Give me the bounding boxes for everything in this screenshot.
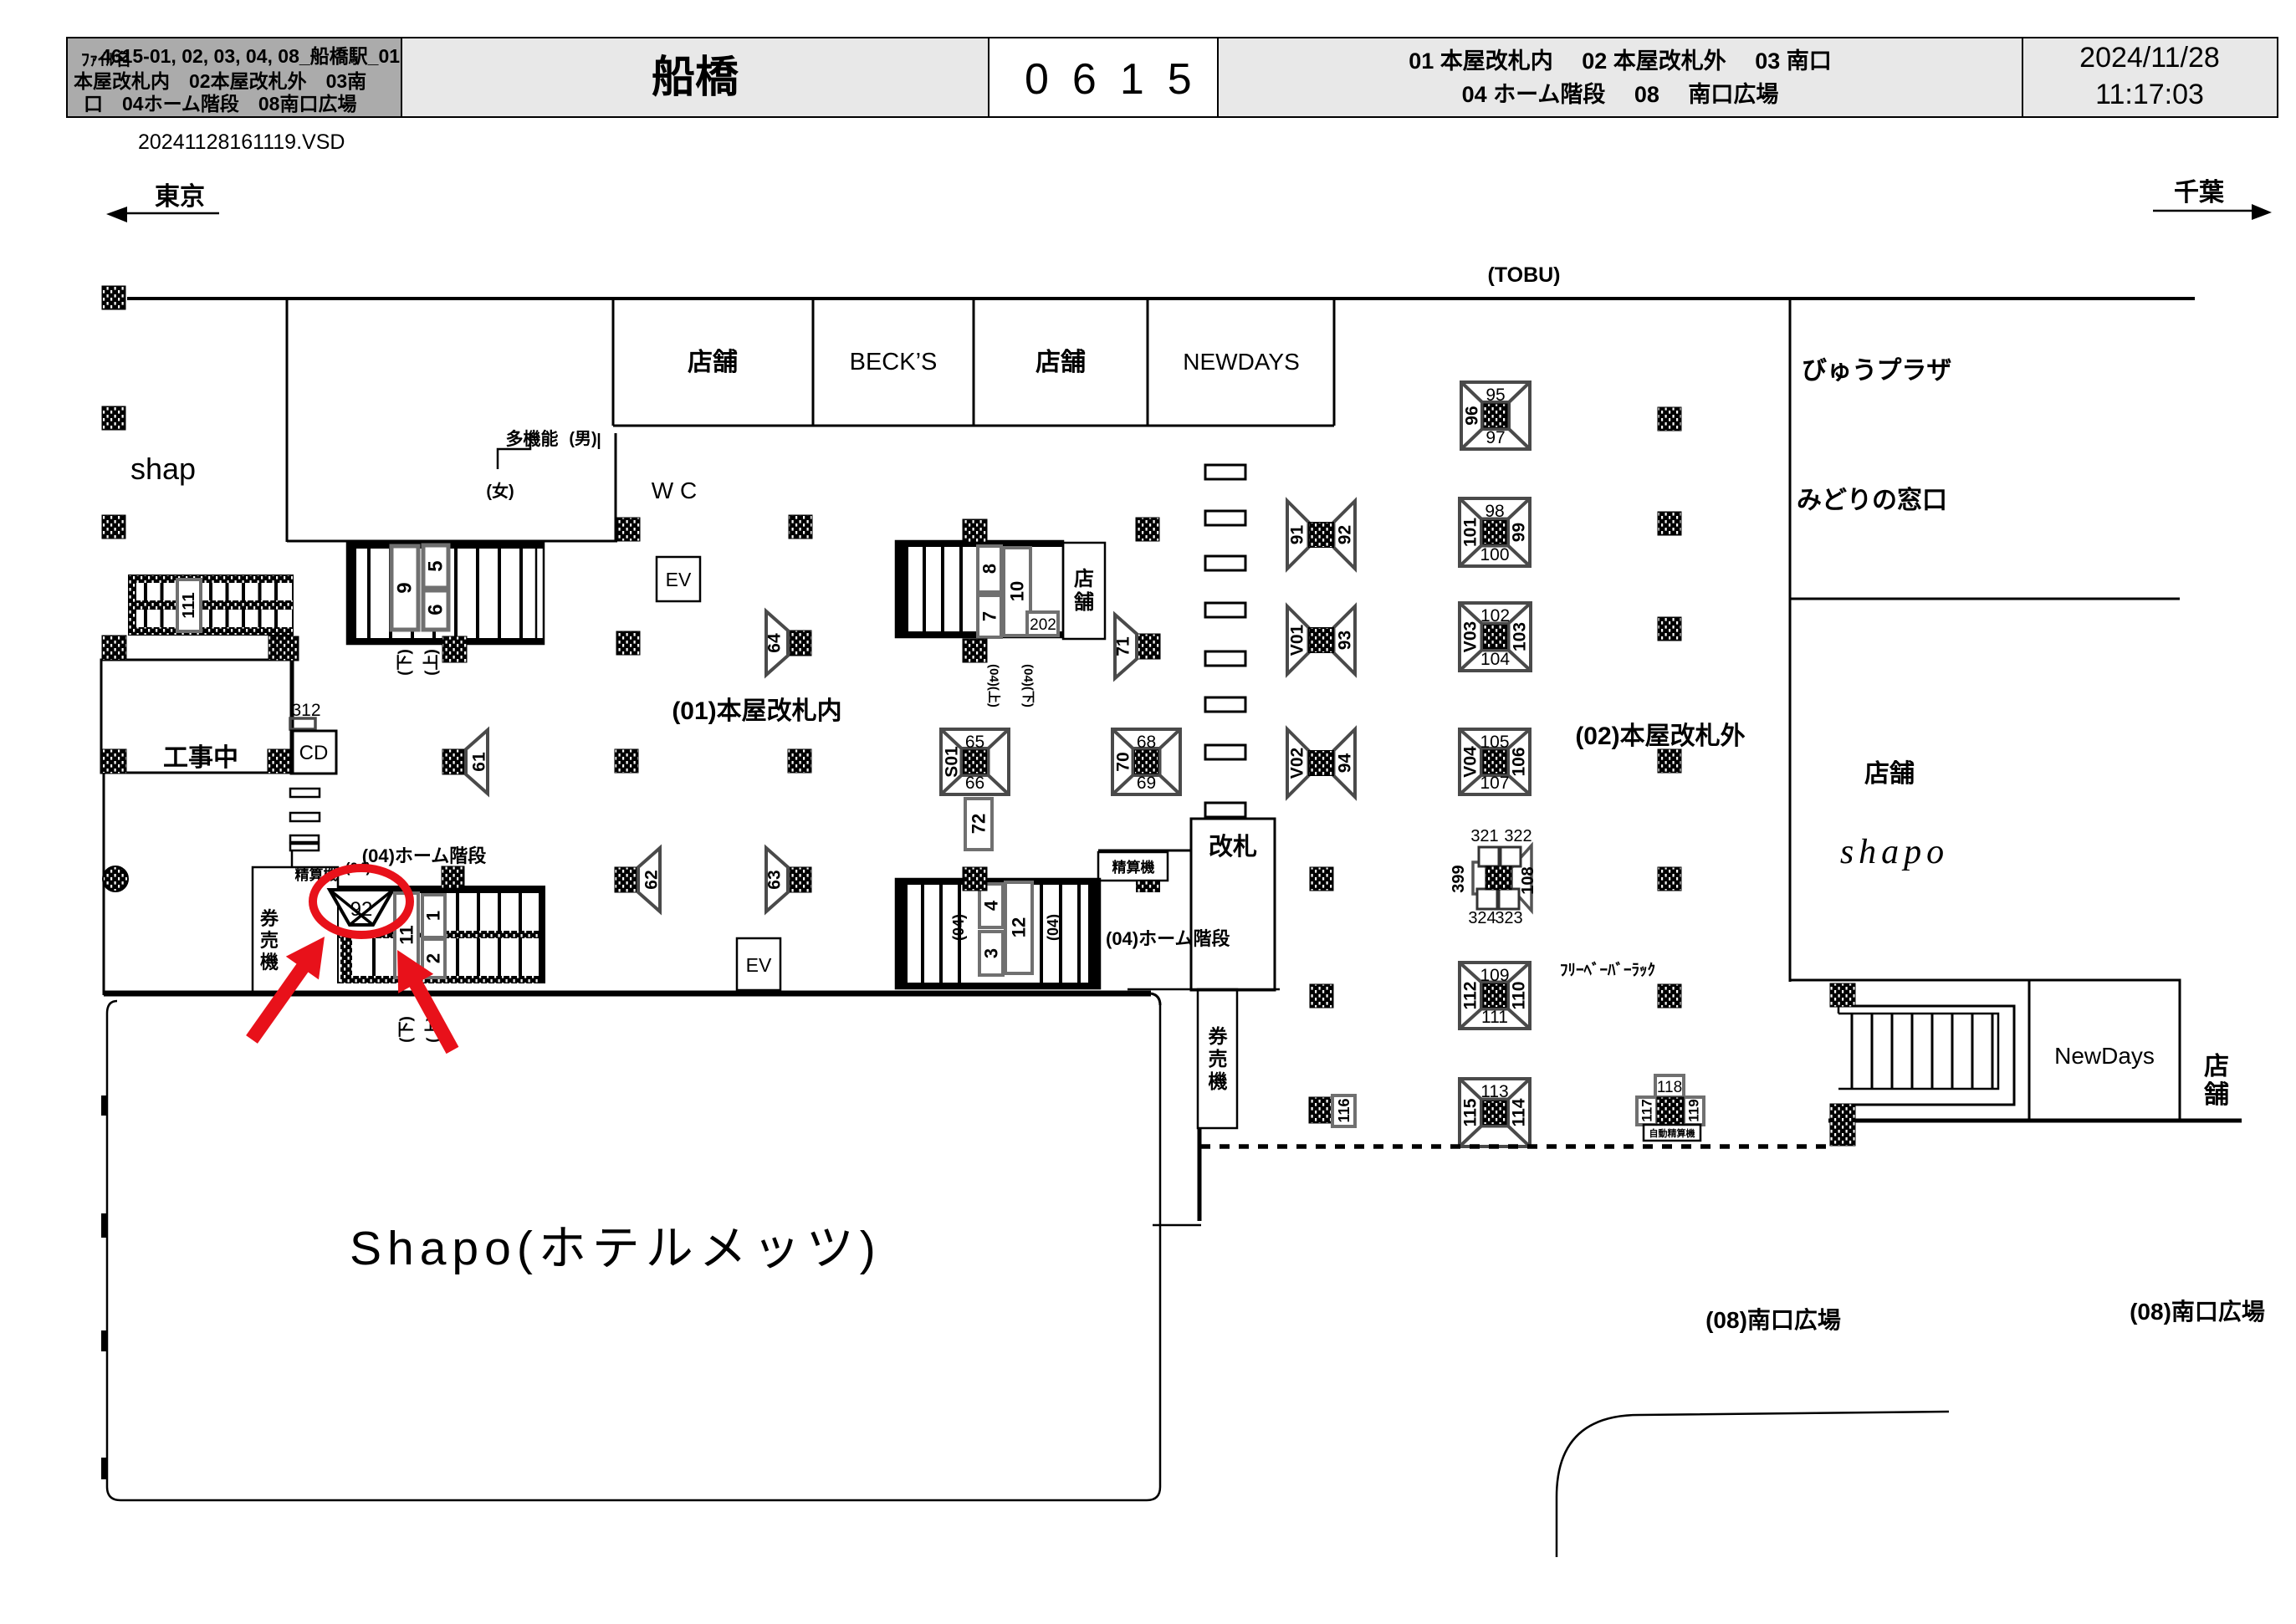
svg-text:68: 68 (1137, 733, 1156, 752)
svg-text:(04)ホーム階段: (04)ホーム階段 (1106, 928, 1230, 949)
svg-text:(下): (下) (398, 1016, 416, 1043)
svg-text:91: 91 (1288, 525, 1307, 545)
svg-text:(04): (04) (1045, 914, 1061, 941)
svg-text:101: 101 (1461, 518, 1480, 547)
svg-text:96: 96 (1463, 406, 1482, 425)
svg-text:323: 323 (1495, 909, 1522, 927)
svg-text:(上): (上) (422, 649, 441, 676)
svg-text:61: 61 (470, 752, 489, 772)
svg-text:63: 63 (765, 870, 785, 889)
svg-text:106: 106 (1510, 747, 1529, 776)
svg-text:112: 112 (1461, 982, 1480, 1010)
svg-text:NEWDAYS: NEWDAYS (1183, 349, 1300, 375)
svg-text:工事中: 工事中 (163, 744, 238, 772)
svg-text:70: 70 (1114, 752, 1133, 771)
svg-text:321: 321 (1470, 827, 1498, 845)
svg-text:V02: V02 (1288, 748, 1307, 779)
svg-text:(08)南口広場: (08)南口広場 (2130, 1299, 2265, 1325)
svg-text:04 ホーム階段 08 南口広場: 04 ホーム階段 08 南口広場 (1462, 81, 1779, 107)
svg-text:95: 95 (1485, 386, 1505, 405)
svg-text:自動精算機: 自動精算機 (1649, 1127, 1695, 1139)
svg-text:108: 108 (1519, 866, 1537, 894)
svg-text:92: 92 (1336, 525, 1355, 544)
svg-text:399: 399 (1450, 865, 1468, 892)
svg-text:(04)(下): (04)(下) (1021, 664, 1036, 707)
svg-text:ﾌﾘｰﾍﾞｰﾊﾞｰﾗｯｸ: ﾌﾘｰﾍﾞｰﾊﾞｰﾗｯｸ (1560, 960, 1655, 979)
svg-text:V01: V01 (1288, 625, 1307, 656)
svg-text:店舗: 店舗 (1864, 760, 1915, 788)
svg-text:CD: CD (299, 742, 329, 764)
svg-text:20241128161119.VSD: 20241128161119.VSD (138, 130, 345, 154)
svg-text:船橋: 船橋 (652, 54, 739, 102)
svg-text:116: 116 (1336, 1098, 1353, 1122)
svg-text:(02)本屋改札外: (02)本屋改札外 (1575, 723, 1745, 750)
svg-text:店舗: 店舗 (688, 349, 738, 376)
svg-text:NewDays: NewDays (2054, 1043, 2155, 1069)
svg-text:東京: 東京 (155, 182, 205, 211)
svg-text:12: 12 (1009, 917, 1030, 937)
svg-text:10: 10 (1007, 581, 1028, 601)
svg-text:5: 5 (425, 560, 447, 571)
svg-text:110: 110 (1510, 982, 1529, 1010)
svg-text:71: 71 (1114, 636, 1133, 656)
svg-text:202: 202 (1030, 616, 1056, 634)
svg-text:1: 1 (423, 911, 444, 921)
svg-text:EV: EV (746, 954, 772, 976)
svg-text:券: 券 (1209, 1025, 1229, 1047)
svg-text:65: 65 (965, 733, 984, 752)
svg-text:shapo: shapo (1840, 833, 1949, 871)
svg-text:8: 8 (979, 564, 1000, 574)
svg-text:92: 92 (350, 898, 373, 921)
svg-text:64: 64 (765, 633, 785, 653)
svg-text:100: 100 (1480, 545, 1509, 564)
svg-text:4615-01, 02, 03, 04, 08_船橋駅_01: 4615-01, 02, 03, 04, 08_船橋駅_01 (100, 45, 400, 67)
svg-text:72: 72 (969, 814, 989, 834)
svg-text:機: 機 (260, 952, 279, 973)
svg-text:改札: 改札 (1209, 833, 1257, 861)
svg-text:BECK’S: BECK’S (850, 349, 938, 375)
svg-text:312: 312 (291, 701, 320, 720)
svg-text:舗: 舗 (1073, 591, 1094, 614)
svg-text:66: 66 (965, 774, 984, 793)
svg-text:322: 322 (1504, 827, 1532, 845)
svg-text:119: 119 (1686, 1099, 1702, 1121)
svg-text:EV: EV (666, 569, 692, 590)
svg-text:117: 117 (1639, 1099, 1655, 1121)
svg-text:324: 324 (1468, 909, 1496, 927)
svg-text:売: 売 (260, 930, 279, 951)
svg-text:111: 111 (180, 592, 198, 618)
svg-text:97: 97 (1485, 428, 1505, 447)
svg-text:Shapo(ホテルメッツ): Shapo(ホテルメッツ) (350, 1222, 882, 1275)
svg-text:口 04ホーム階段 08南口広場: 口 04ホーム階段 08南口広場 (84, 93, 356, 115)
svg-text:(女): (女) (486, 481, 514, 501)
svg-text:115: 115 (1461, 1098, 1480, 1126)
svg-text:11: 11 (396, 925, 417, 944)
svg-text:103: 103 (1511, 622, 1530, 651)
svg-text:3: 3 (981, 948, 1002, 958)
svg-text:S01: S01 (943, 746, 962, 778)
svg-text:千葉: 千葉 (2174, 179, 2225, 207)
svg-text:精算機: 精算機 (1112, 859, 1155, 876)
svg-text:機: 機 (1209, 1070, 1228, 1092)
svg-text:104: 104 (1480, 650, 1510, 669)
svg-text:V04: V04 (1461, 746, 1480, 778)
svg-text:109: 109 (1480, 966, 1509, 985)
svg-text:62: 62 (642, 870, 662, 889)
svg-text:多機能: 多機能 (506, 429, 559, 449)
svg-text:店: 店 (2204, 1053, 2229, 1080)
svg-text:93: 93 (1336, 631, 1355, 650)
svg-text:(TOBU): (TOBU) (1487, 263, 1560, 287)
svg-text:102: 102 (1480, 606, 1510, 626)
svg-text:4: 4 (981, 900, 1002, 911)
svg-text:7: 7 (979, 611, 1000, 621)
svg-text:W C: W C (652, 477, 697, 503)
svg-text:0615: 0615 (1025, 55, 1215, 104)
svg-text:(下): (下) (396, 649, 414, 676)
svg-text:びゅうプラザ: びゅうプラザ (1802, 357, 1951, 385)
svg-text:2: 2 (423, 953, 444, 963)
svg-text:118: 118 (1657, 1079, 1682, 1096)
svg-text:(04): (04) (950, 914, 967, 941)
svg-text:券: 券 (259, 908, 279, 929)
svg-text:113: 113 (1480, 1082, 1508, 1101)
svg-text:売: 売 (1209, 1048, 1228, 1070)
svg-text:本屋改札内 02本屋改札外 03南: 本屋改札内 02本屋改札外 03南 (74, 70, 366, 92)
svg-text:114: 114 (1510, 1098, 1529, 1126)
svg-text:店舗: 店舗 (1036, 349, 1086, 376)
svg-text:店: 店 (1074, 568, 1094, 590)
svg-text:99: 99 (1510, 523, 1529, 542)
svg-text:9: 9 (394, 582, 417, 593)
svg-text:94: 94 (1336, 753, 1355, 774)
svg-text:2024/11/28: 2024/11/28 (2079, 42, 2220, 74)
svg-text:V03: V03 (1461, 621, 1480, 652)
svg-text:舗: 舗 (2203, 1081, 2229, 1109)
svg-text:105: 105 (1480, 733, 1509, 752)
svg-text:(04)(上): (04)(上) (987, 664, 1001, 707)
svg-text:69: 69 (1137, 774, 1156, 793)
svg-text:(男): (男) (569, 430, 596, 448)
svg-text:98: 98 (1485, 502, 1504, 521)
svg-text:(01)本屋改札内: (01)本屋改札内 (672, 697, 841, 725)
svg-text:6: 6 (425, 604, 447, 615)
svg-text:107: 107 (1480, 774, 1509, 793)
svg-text:01 本屋改札内 02 本屋改札外 03 南口: 01 本屋改札内 02 本屋改札外 03 南口 (1409, 49, 1832, 74)
svg-text:11:17:03: 11:17:03 (2095, 79, 2204, 110)
svg-text:(04)ホーム階段: (04)ホーム階段 (362, 845, 486, 866)
svg-text:111: 111 (1481, 1008, 1508, 1027)
svg-text:(08)南口広場: (08)南口広場 (1705, 1307, 1841, 1333)
svg-text:shap: shap (130, 452, 196, 486)
svg-text:みどりの窓口: みどりの窓口 (1797, 486, 1947, 514)
